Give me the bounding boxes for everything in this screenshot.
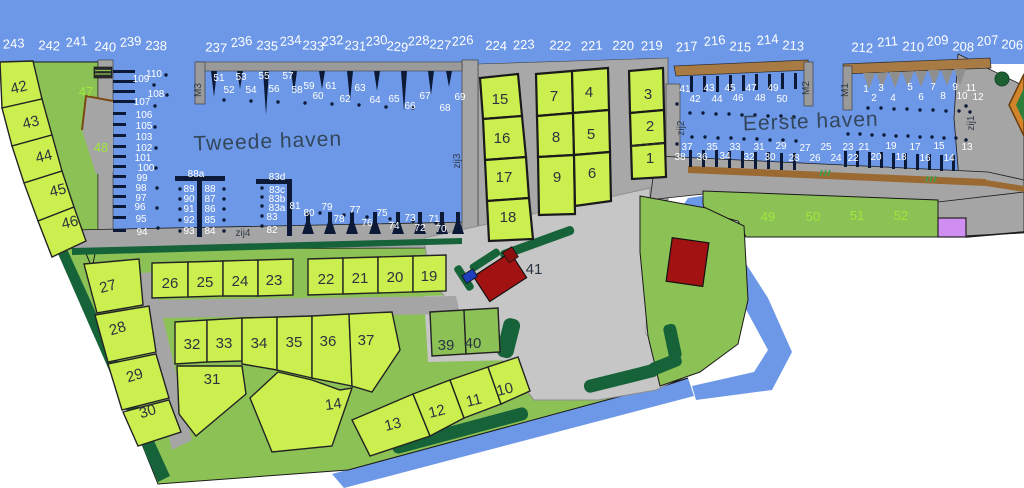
plot-number-label: 20 (387, 269, 404, 286)
berth-number-label: 4 (890, 93, 896, 104)
plot-number-label: 2 (646, 118, 654, 135)
mooring-post-dot (153, 104, 156, 107)
quay-number-label: 210 (902, 38, 924, 54)
plot-number-label: 17 (496, 169, 513, 186)
mooring-post-dot (222, 187, 225, 190)
mooring-post-dot (755, 137, 758, 140)
berth-number-label: 67 (419, 91, 431, 102)
berth-number-label: 53 (235, 72, 247, 83)
berth-number-label: 96 (134, 202, 146, 213)
berth-number-label: 24 (830, 153, 842, 164)
quay-number-label: 207 (976, 32, 999, 49)
plot-number-label: 34 (251, 335, 268, 352)
berth-number-label: 48 (754, 93, 766, 104)
berth-number-label: 57 (282, 71, 294, 82)
berth-number-label: 88a (188, 169, 205, 180)
quay-number-label: 228 (407, 32, 430, 48)
mooring-post-dot (957, 109, 960, 112)
mooring-post-dot (688, 111, 691, 114)
plot-number-label: 52 (894, 208, 908, 223)
mooring-post-dot (942, 136, 945, 139)
plot-36[interactable] (312, 314, 352, 386)
mooring-post-dot (675, 142, 678, 145)
mooring-post-dot (165, 93, 168, 96)
quay-number-label: 241 (65, 33, 88, 50)
plot-number-label: 41 (526, 261, 543, 278)
mooring-post-dot (794, 139, 797, 142)
plot-number-label: 9 (553, 169, 561, 186)
harbor-title: Eerste haven (743, 108, 879, 136)
plot-number-label: 37 (358, 332, 375, 349)
plot-number-label: 21 (352, 270, 369, 287)
berth-number-label: 31 (753, 142, 765, 153)
plot-number-label: 33 (216, 335, 233, 352)
plot-number-label: 32 (184, 336, 201, 353)
plot-number-label: 19 (421, 268, 438, 285)
berth-number-label: 66 (404, 101, 416, 112)
mooring-post-dot (260, 214, 263, 217)
bench-icon (94, 67, 112, 78)
zij3-wall (462, 60, 478, 242)
plot-number-label: 25 (197, 274, 214, 291)
mooring-post-dot (879, 106, 882, 109)
mooring-post-dot (303, 101, 306, 104)
mooring-post-dot (260, 224, 263, 227)
berth-number-label: 58 (291, 85, 303, 96)
quay-number-label: 208 (952, 38, 974, 54)
mooring-post-dot (178, 197, 181, 200)
berth-number-label: 63 (354, 83, 366, 94)
mooring-post-dot (727, 112, 730, 115)
plot-number-label: 23 (266, 272, 283, 289)
pier-marker-label: zij1 (966, 115, 977, 130)
berth-number-label: 36 (696, 152, 708, 163)
mooring-post-dot (931, 108, 934, 111)
mooring-post-dot (222, 207, 225, 210)
berth-number-label: 76 (361, 218, 373, 229)
berth-number-label: 18 (895, 152, 907, 163)
mooring-post-dot (906, 134, 909, 137)
quay-number-label: 227 (429, 36, 452, 52)
mooring-post-dot (260, 204, 263, 207)
berth-number-label: 25 (820, 142, 832, 153)
mooring-post-dot (222, 229, 225, 232)
berth-number-label: 69 (454, 92, 466, 103)
mooring-post-dot (918, 108, 921, 111)
mooring-post-dot (882, 133, 885, 136)
berth-number-label: 49 (767, 83, 779, 94)
berth-number-label: 72 (414, 223, 426, 234)
berth-number-label: 92 (183, 215, 195, 226)
quay-number-label: 229 (386, 38, 409, 55)
berth-number-label: 3 (878, 83, 884, 94)
plot-number-label: 50 (806, 209, 820, 224)
berth-number-label: 19 (885, 141, 897, 152)
berth-number-label: 6 (918, 92, 924, 103)
plot-number-label: 16 (494, 130, 511, 147)
plot-number-label: 49 (761, 209, 775, 224)
marina-map-page: 2432422412402392382372362352342332322312… (0, 0, 1024, 488)
berth-number-label: 85 (204, 215, 216, 226)
mooring-post-dot (716, 136, 719, 139)
purple-plot[interactable] (938, 218, 966, 237)
mooring-post-dot (154, 166, 157, 169)
quay-number-label: 214 (756, 31, 779, 48)
berth-number-label: 15 (933, 141, 945, 152)
plot-number-label: 1 (646, 150, 654, 167)
berth-number-label: 50 (776, 94, 788, 105)
mooring-post-dot (178, 207, 181, 210)
berth-number-label: 105 (136, 121, 153, 132)
berth-number-label: 65 (388, 94, 400, 105)
berth-number-label: 83d (269, 172, 286, 183)
quay-number-label: 226 (451, 32, 474, 49)
berth-number-label: 56 (268, 84, 280, 95)
plot-number-label: 40 (465, 335, 482, 352)
mooring-post-dot (156, 226, 159, 229)
berth-number-label: 32 (743, 152, 755, 163)
mooring-post-dot (384, 105, 387, 108)
berth-number-label: 17 (909, 142, 921, 153)
pier-marker-label: zij2 (676, 120, 687, 135)
quay-number-label: 206 (1001, 36, 1023, 52)
mooring-post-dot (905, 107, 908, 110)
quay-number-label: 215 (729, 38, 752, 54)
mooring-post-dot (930, 135, 933, 138)
berth-number-label: 74 (388, 221, 400, 232)
quay-number-label: 232 (321, 32, 344, 49)
mooring-post-dot (768, 138, 771, 141)
berth-number-label: 21 (858, 142, 870, 153)
berth-number-label: 93 (183, 226, 195, 237)
berth-number-label: 5 (907, 82, 913, 93)
berth-number-label: 86 (204, 204, 216, 215)
quay-number-label: 217 (676, 38, 698, 54)
mooring-post-dot (152, 83, 155, 86)
quay-number-label: 242 (38, 37, 60, 53)
berth-number-label: 12 (972, 92, 984, 103)
quay-number-label: 213 (782, 37, 804, 53)
mooring-post-dot (260, 195, 263, 198)
quay-number-label: 236 (230, 33, 253, 51)
berth-number-label: 84 (204, 226, 216, 237)
berth-number-label: 35 (706, 142, 718, 153)
plot-number-label: 22 (318, 271, 335, 288)
plot-number-label: 14 (324, 395, 343, 414)
plot-number-label: 36 (320, 333, 337, 350)
quay-number-label: 212 (851, 39, 873, 55)
mooring-post-dot (742, 137, 745, 140)
mooring-post-dot (178, 218, 181, 221)
quay-number-label: 223 (513, 36, 535, 52)
mooring-post-dot (894, 134, 897, 137)
quay-number-label: 234 (279, 32, 302, 49)
berth-number-label: 51 (213, 73, 225, 84)
quay-number-label: 238 (145, 38, 167, 54)
mooring-post-dot (892, 107, 895, 110)
berth-number-label: 80 (303, 208, 315, 219)
berth-number-label: 94 (136, 227, 148, 238)
berth-number-label: 23 (842, 142, 854, 153)
berth-number-label: 14 (943, 153, 955, 164)
berth-number-label: 1 (863, 84, 869, 95)
berth-number-label: 7 (930, 82, 936, 93)
mooring-post-dot (330, 102, 333, 105)
berth-number-label: 16 (919, 153, 931, 164)
berth-number-label: 43 (703, 83, 715, 94)
berth-number-label: 109 (133, 74, 150, 85)
mooring-post-dot (729, 136, 732, 139)
building-east (666, 238, 709, 287)
pier-marker-label: M3 (193, 83, 204, 97)
mooring-post-dot (675, 102, 678, 105)
plot-number-label: 35 (286, 334, 303, 351)
berth-number-label: 77 (349, 205, 361, 216)
berth-number-label: 106 (136, 110, 153, 121)
berth-number-label: 54 (245, 85, 257, 96)
quay-number-label: 235 (256, 37, 278, 53)
berth-number-label: 103 (136, 132, 153, 143)
berth-number-label: 37 (681, 142, 693, 153)
mooring-post-dot (178, 229, 181, 232)
plot-number-label: 8 (552, 129, 560, 146)
berth-number-label: 75 (376, 208, 388, 219)
plot-number-label: 39 (438, 337, 455, 354)
berth-number-label: 62 (339, 94, 351, 105)
quay-number-label: 220 (612, 38, 634, 54)
berth-number-label: 79 (321, 202, 333, 213)
plot-number-label: 47 (79, 84, 93, 99)
mooring-post-dot (918, 135, 921, 138)
berth-number-label: 42 (689, 94, 701, 105)
mooring-post-dot (968, 110, 971, 113)
berth-number-label: 52 (223, 85, 235, 96)
berth-number-label: 26 (809, 153, 821, 164)
mooring-post-dot (164, 73, 167, 76)
mooring-post-dot (870, 133, 873, 136)
harbor-mouth-green (640, 196, 748, 386)
plot-number-label: 15 (492, 91, 509, 108)
berth-number-label: 68 (439, 103, 451, 114)
quay-number-label: 230 (365, 32, 388, 49)
quay-number-label: 240 (94, 38, 117, 54)
pier-marker-label: zij3 (452, 153, 463, 168)
berth-number-label: 33 (729, 142, 741, 153)
quay-number-label: 216 (703, 32, 726, 49)
quay-number-label: 224 (485, 38, 507, 54)
mooring-post-dot (155, 206, 158, 209)
tree-icon (995, 72, 1009, 86)
quay-number-label: 231 (344, 37, 367, 53)
berth-number-label: 91 (183, 204, 195, 215)
berth-number-label: 95 (135, 214, 147, 225)
quay-number-label: 211 (877, 33, 899, 50)
plot-number-label: 51 (850, 208, 864, 223)
mooring-post-dot (276, 100, 279, 103)
berth-number-label: 81 (289, 201, 301, 212)
mooring-post-dot (154, 146, 157, 149)
mooring-post-dot (690, 135, 693, 138)
quay-number-label: 222 (549, 37, 571, 53)
berth-number-label: 61 (325, 81, 337, 92)
quay-number-label: 243 (2, 35, 25, 51)
berth-number-label: 107 (134, 97, 151, 108)
mooring-post-dot (260, 186, 263, 189)
berth-number-label: 38 (674, 152, 686, 163)
mooring-post-dot (703, 135, 706, 138)
mooring-post-dot (701, 111, 704, 114)
berth-number-label: 44 (711, 94, 723, 105)
plot-number-label: 26 (162, 275, 179, 292)
berth-number-label: 83 (266, 212, 278, 223)
quay-number-label: 221 (581, 37, 603, 53)
marina-map: 2432422412402392382372362352342332322312… (0, 0, 1024, 488)
mooring-post-dot (964, 104, 967, 107)
quay-number-label: 209 (926, 32, 949, 49)
mooring-post-dot (954, 136, 957, 139)
mooring-post-dot (249, 99, 252, 102)
mooring-post-dot (714, 112, 717, 115)
plot-number-label: 48 (94, 140, 108, 155)
mooring-post-dot (222, 197, 225, 200)
plot-number-label: 5 (587, 126, 595, 143)
plot-number-label: 6 (588, 165, 596, 182)
quay-number-label: 239 (119, 33, 142, 50)
berth-number-label: 29 (775, 141, 787, 152)
berth-number-label: 64 (369, 95, 381, 106)
pier-marker-label: M1 (840, 83, 851, 97)
berth-number-label: 13 (961, 142, 973, 153)
mooring-post-dot (153, 125, 156, 128)
berth-number-label: 20 (870, 152, 882, 163)
plot-number-label: 18 (500, 209, 517, 226)
mooring-post-dot (846, 132, 849, 135)
quay-number-label: 219 (641, 38, 663, 54)
berth-number-label: 78 (333, 214, 345, 225)
plot-number-label: 3 (644, 86, 652, 103)
berth-number-label: 30 (764, 152, 776, 163)
plot-number-label: 24 (232, 273, 249, 290)
berth-number-label: 2 (871, 93, 877, 104)
pier-m3-bar (196, 62, 462, 71)
berth-number-label: 28 (788, 153, 800, 164)
mooring-post-dot (222, 98, 225, 101)
mooring-post-dot (222, 218, 225, 221)
berth-number-label: 70 (435, 224, 447, 235)
plot-number-label: 7 (550, 88, 558, 105)
berth-number-label: 60 (312, 91, 324, 102)
mooring-post-dot (155, 186, 158, 189)
mooring-post-dot (178, 187, 181, 190)
berth-number-label: 22 (847, 153, 859, 164)
quay-number-label: 237 (205, 39, 227, 55)
mooring-post-dot (944, 109, 947, 112)
berth-number-label: 82 (266, 225, 278, 236)
berth-number-label: 46 (732, 93, 744, 104)
plot-number-label: 31 (204, 371, 221, 388)
mooring-post-dot (357, 103, 360, 106)
pier-marker-label: zij4 (235, 228, 250, 239)
mooring-post-dot (858, 132, 861, 135)
berth-number-label: 55 (258, 71, 270, 82)
pier-marker-label: M2 (801, 81, 812, 95)
berth-number-label: 8 (940, 91, 946, 102)
plot-number-label: 4 (585, 84, 593, 101)
